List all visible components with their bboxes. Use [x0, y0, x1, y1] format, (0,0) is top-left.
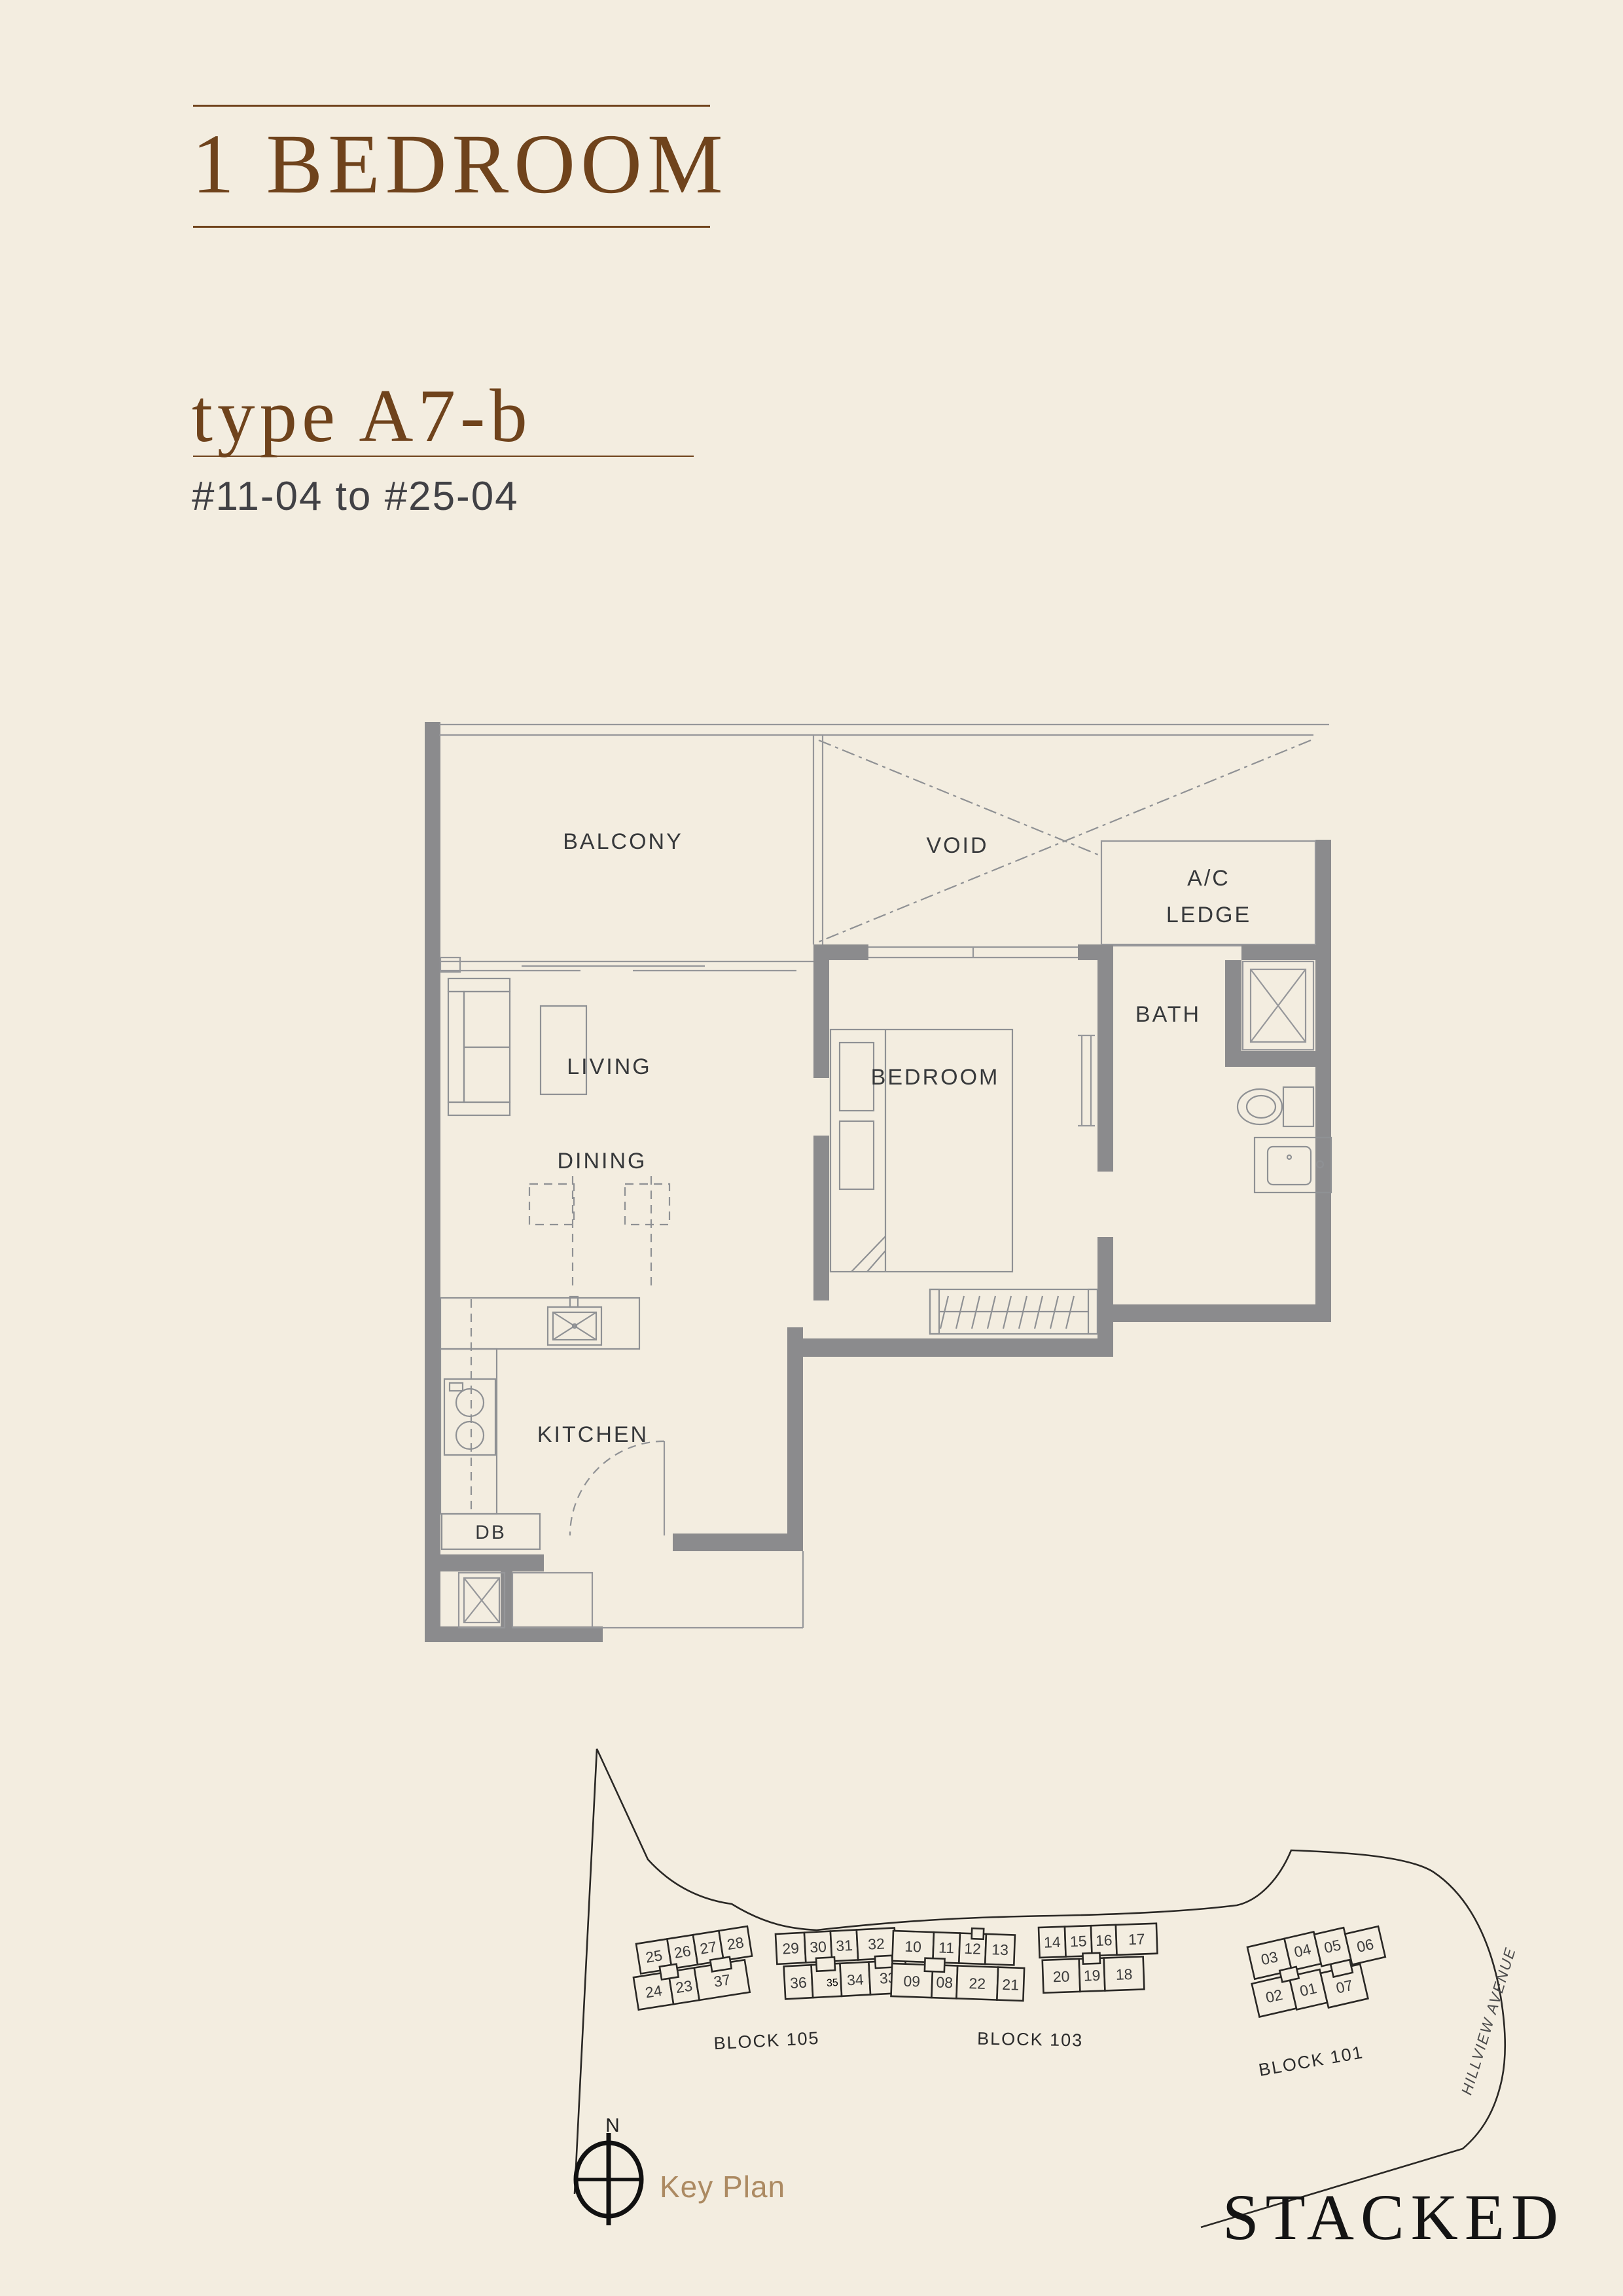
bedroom-label: BEDROOM [871, 1065, 1000, 1090]
unit-number: 08 [936, 1973, 953, 1991]
block-103-wing-a: 10 11 12 13 09 08 22 21 [891, 1926, 1026, 2001]
pillow [840, 1121, 874, 1189]
unit-number: 32 [868, 1935, 885, 1952]
dining-set [529, 1176, 669, 1286]
unit-number: 26 [673, 1942, 692, 1962]
unit-number: 19 [1083, 1967, 1100, 1984]
dining-label: DINING [558, 1149, 647, 1174]
unit-type-rule [193, 456, 694, 457]
unit-number: 11 [938, 1939, 955, 1956]
unit-type-title: type A7-b [192, 378, 532, 454]
unit-number: 17 [1128, 1930, 1145, 1948]
unit-number: 20 [1052, 1967, 1069, 1985]
unit-number: 28 [726, 1933, 745, 1953]
unit-number: 23 [674, 1977, 693, 1997]
north-compass-icon: N [575, 2115, 643, 2225]
north-label: N [605, 2115, 620, 2136]
title-rule-bottom [193, 226, 710, 228]
bath-label: BATH [1135, 1002, 1201, 1027]
void-label: VOID [926, 833, 988, 858]
balcony-label: BALCONY [563, 829, 683, 854]
kitchen-sink [548, 1297, 601, 1345]
unit-number: 21 [1002, 1976, 1019, 1994]
dining-chair [529, 1184, 574, 1225]
unit-number: 22 [969, 1975, 986, 1992]
block-103-wing-b: 14 15 16 17 20 19 18 [1039, 1924, 1158, 1993]
stove [444, 1379, 495, 1455]
unit-number: 30 [810, 1938, 827, 1956]
block-105-label: BLOCK 105 [713, 2028, 820, 2053]
keyplan-caption: Key Plan [660, 2170, 785, 2204]
sofa [448, 978, 510, 1115]
unit-number: 13 [991, 1941, 1008, 1958]
entry-vestibule [512, 1573, 592, 1628]
toilet [1238, 1087, 1313, 1126]
unit-number: 16 [1095, 1931, 1112, 1949]
unit-number: 29 [782, 1939, 800, 1957]
block-101-label: BLOCK 101 [1257, 2042, 1365, 2080]
page-title: 1 BEDROOM [192, 122, 728, 207]
key-plan: 25 26 27 28 24 23 37 29 30 31 32 36 35 3… [556, 1731, 1525, 2229]
unit-number: 12 [964, 1940, 981, 1958]
unit-number: 10 [904, 1938, 921, 1956]
unit-number: 14 [1044, 1933, 1061, 1951]
unit-number: 24 [644, 1982, 664, 2001]
title-rule-top [193, 105, 710, 107]
pillow [840, 1043, 874, 1111]
block-105-wing-b: 29 30 31 32 36 35 34 33 [776, 1928, 907, 2000]
unit-number: 18 [1115, 1965, 1132, 1983]
floor-plan: BALCONY VOID A/C LEDGE LIVING DINING BED… [417, 710, 1340, 1646]
unit-range: #11-04 to #25-04 [192, 476, 519, 517]
block-103-label: BLOCK 103 [977, 2029, 1084, 2051]
ac-ledge-label-line1: A/C [1187, 866, 1230, 891]
unit-number: 31 [836, 1937, 853, 1954]
unit-number: 15 [1070, 1932, 1087, 1950]
block-105-wing-a: 25 26 27 28 24 23 37 [628, 1926, 757, 2010]
unit-number: 09 [903, 1973, 920, 1990]
unit-number: 37 [713, 1971, 732, 1990]
coffee-table [541, 1006, 586, 1094]
entry-door-swing [570, 1441, 664, 1535]
stacked-logo: STACKED [1222, 2185, 1565, 2250]
unit-number: 36 [789, 1974, 807, 1992]
dining-chair [625, 1184, 669, 1225]
brochure-page: { "page": { "background": "#f3ede0", "ac… [0, 0, 1623, 2296]
wardrobe [930, 1289, 1097, 1334]
ac-ledge-box [1101, 841, 1315, 946]
kitchen-label: KITCHEN [537, 1422, 649, 1447]
unit-number: 25 [645, 1946, 664, 1966]
unit-number: 34 [846, 1971, 864, 1988]
ac-ledge-label-line2: LEDGE [1166, 903, 1251, 927]
unit-number: 35 [827, 1977, 839, 1989]
shower-stall [1243, 961, 1313, 1050]
service-shaft [459, 1573, 505, 1628]
db-label: DB [475, 1522, 507, 1543]
kitchen-counter [440, 1298, 639, 1514]
living-label: LIVING [567, 1054, 651, 1079]
block-101: 03 04 05 06 02 01 07 [1243, 1918, 1393, 2024]
unit-number: 27 [699, 1938, 718, 1958]
street-label: HILLVIEW AVENUE [1458, 1945, 1520, 2097]
